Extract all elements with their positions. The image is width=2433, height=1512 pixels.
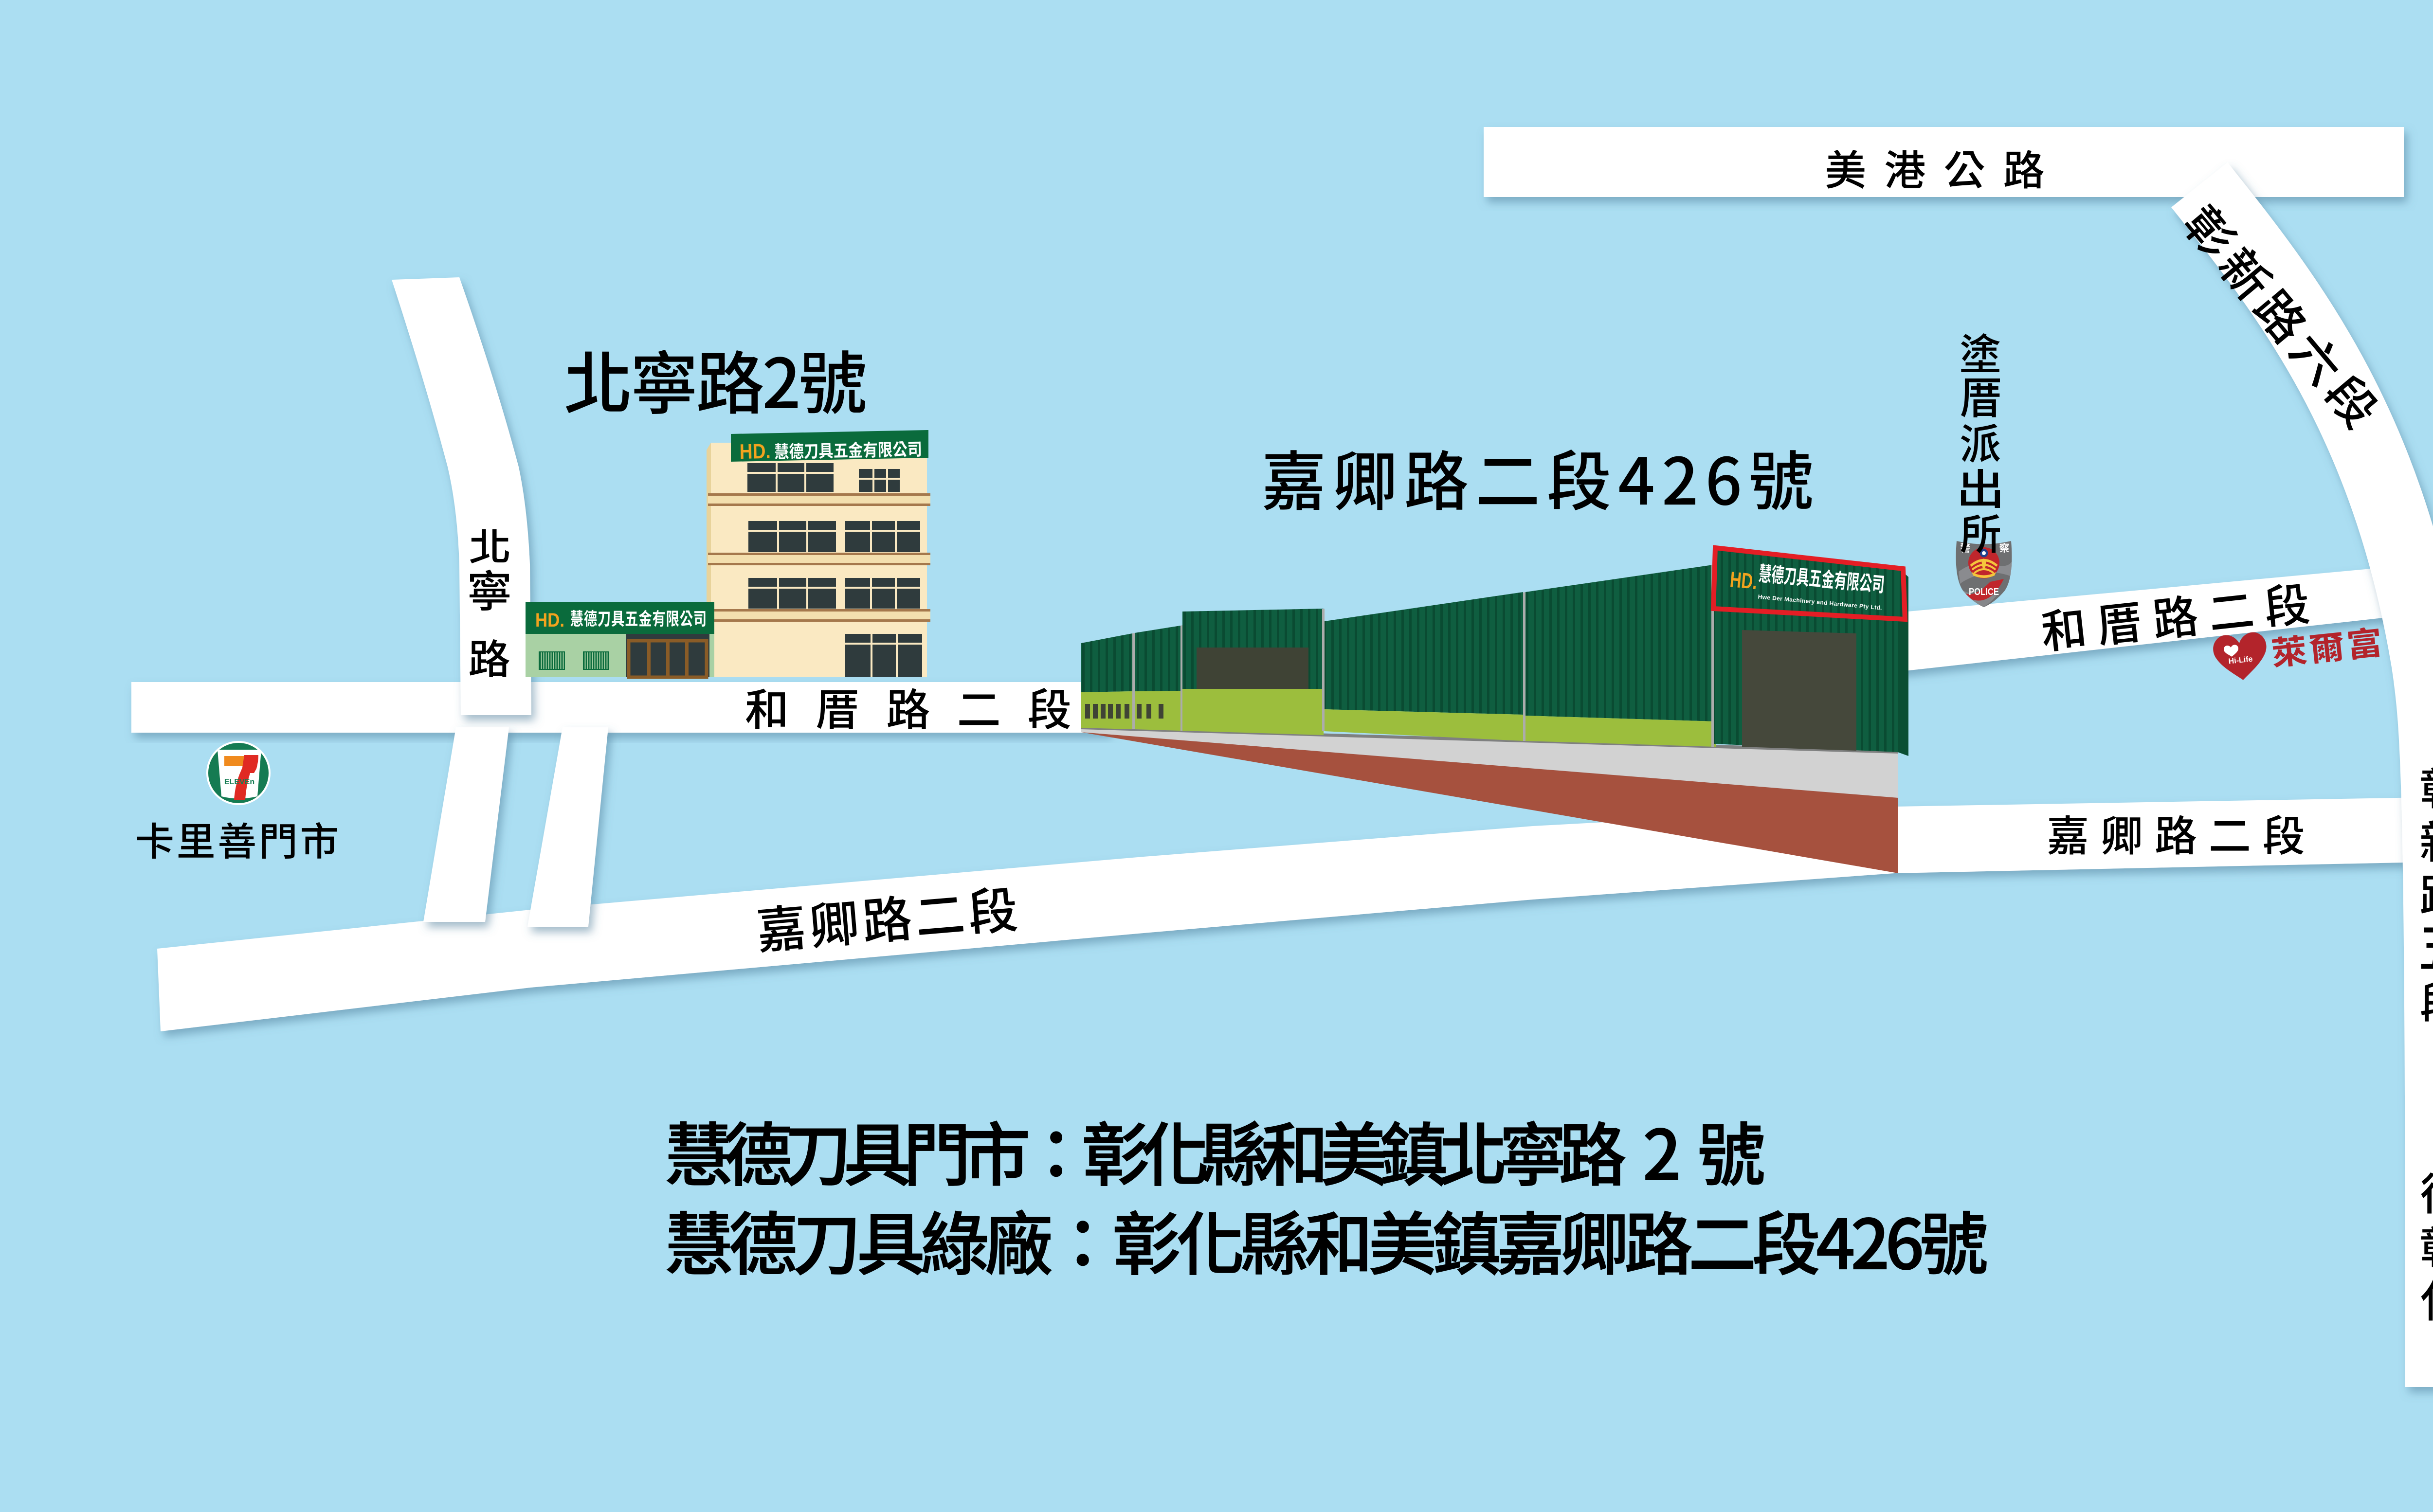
svg-text:ELEVEn: ELEVEn bbox=[224, 778, 254, 786]
svg-text:POLICE: POLICE bbox=[1969, 587, 1999, 597]
svg-text:HD.: HD. bbox=[1729, 567, 1758, 594]
svg-text:HD.: HD. bbox=[535, 610, 564, 631]
svg-text:HD.: HD. bbox=[739, 440, 771, 464]
